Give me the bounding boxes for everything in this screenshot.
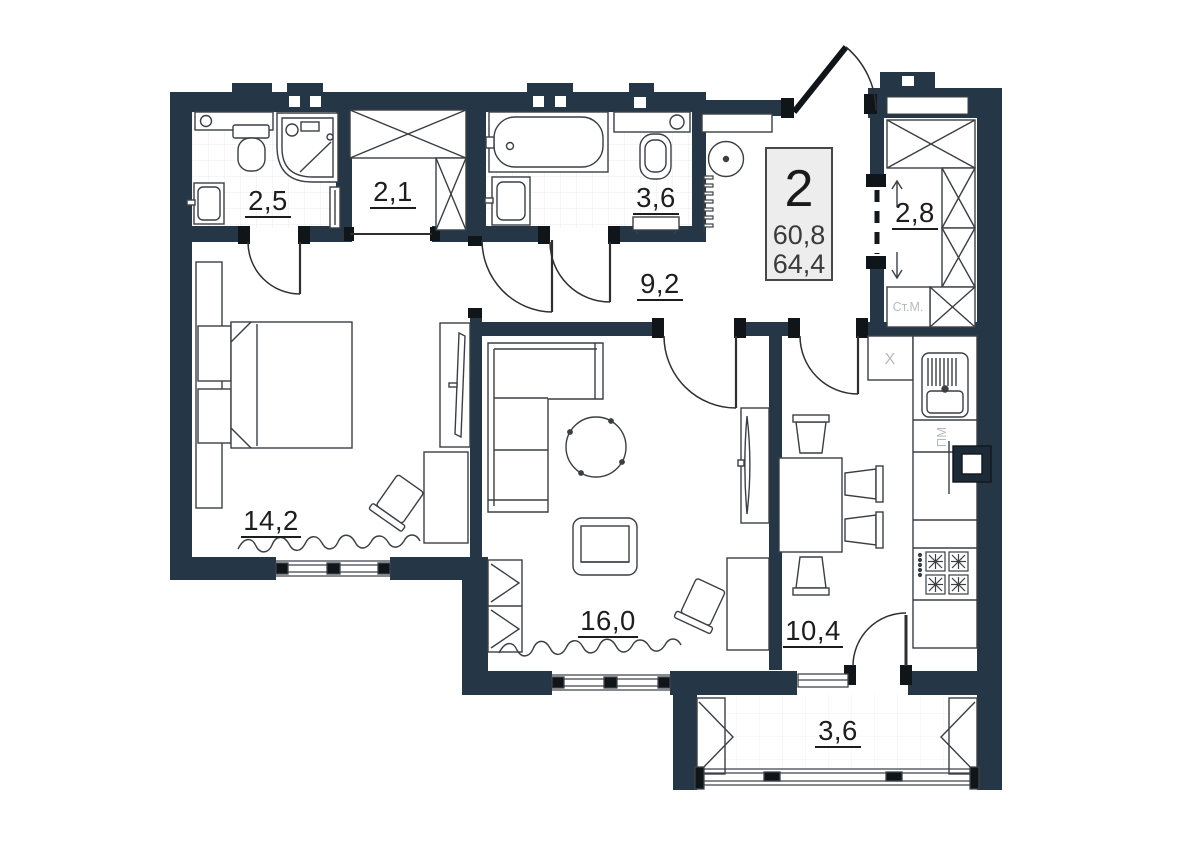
balcony-area-label: 3,6 bbox=[818, 715, 858, 746]
down-arrow-icon bbox=[892, 252, 902, 278]
desk-chair bbox=[369, 472, 428, 532]
bathroom-area-label: 3,6 bbox=[636, 182, 676, 213]
bedroom-door bbox=[482, 240, 552, 312]
coffee-table-icon bbox=[566, 417, 626, 477]
bathtub-icon bbox=[486, 112, 608, 172]
ensuite-door bbox=[248, 242, 300, 294]
hallway-area-label: 9,2 bbox=[640, 268, 680, 299]
rooms-count-label: 2 bbox=[785, 160, 814, 218]
room-bedroom bbox=[196, 262, 470, 552]
plan-info-box: 2 60,8 64,4 bbox=[766, 148, 832, 280]
wardrobe-area-label: 2,1 bbox=[373, 176, 413, 207]
living-window bbox=[552, 675, 670, 690]
console-shelf bbox=[702, 114, 772, 132]
dining-chair bbox=[793, 415, 829, 453]
floor-plan-canvas: 2 60,8 64,4 2,5 2,1 3,6 9,2 2,8 14,2 16,… bbox=[0, 0, 1200, 848]
mirror-center-dot bbox=[724, 157, 729, 162]
balcony-glazing bbox=[695, 767, 979, 789]
dining-chair bbox=[845, 466, 883, 502]
headboard-panel bbox=[196, 262, 222, 508]
living-door bbox=[664, 336, 736, 408]
kitchen-area-label: 10,4 bbox=[785, 615, 841, 646]
dining-chair bbox=[845, 512, 883, 548]
sofa-icon bbox=[488, 343, 603, 512]
entrance-door bbox=[794, 47, 876, 112]
area-total-label: 64,4 bbox=[773, 249, 826, 279]
desk-chair bbox=[674, 576, 729, 634]
kitchen-door bbox=[800, 336, 858, 394]
bedroom-area-label: 14,2 bbox=[243, 505, 299, 536]
radiator bbox=[330, 187, 340, 228]
living-area-label: 16,0 bbox=[580, 605, 636, 636]
area-main-label: 60,8 bbox=[773, 220, 826, 250]
desk bbox=[727, 558, 769, 650]
room-hallway bbox=[702, 114, 772, 177]
boiler-icon bbox=[201, 116, 212, 127]
laundry-area-label: 2,8 bbox=[895, 197, 935, 228]
dining-chair bbox=[793, 557, 829, 595]
curtain-line bbox=[499, 639, 681, 656]
floor-plan: 2 60,8 64,4 2,5 2,1 3,6 9,2 2,8 14,2 16,… bbox=[0, 0, 1200, 848]
bed-icon bbox=[231, 322, 352, 448]
toilet-icon bbox=[233, 125, 269, 171]
storage-cabinet bbox=[488, 560, 522, 652]
balcony-door bbox=[853, 613, 906, 666]
ensuite-area-label: 2,5 bbox=[248, 185, 288, 216]
wardrobe-icon bbox=[440, 323, 470, 447]
washing-machine-label: Ст.М. bbox=[893, 300, 924, 314]
desk bbox=[424, 452, 468, 543]
dining-table bbox=[779, 458, 842, 552]
dishwasher-label: ПМ bbox=[934, 427, 949, 447]
kitchen-sink-icon bbox=[922, 353, 968, 417]
toilet-icon bbox=[640, 134, 671, 179]
armchair-icon bbox=[573, 518, 637, 575]
tv-stand bbox=[738, 408, 769, 523]
corner-shower-icon bbox=[277, 113, 338, 182]
light-icon bbox=[670, 115, 684, 129]
bathroom-door bbox=[550, 242, 610, 302]
sink-icon bbox=[485, 177, 530, 225]
room-kitchen bbox=[779, 336, 991, 648]
corner-sink-label: X bbox=[885, 351, 896, 368]
room-wardrobe bbox=[350, 110, 466, 230]
nightstand bbox=[198, 326, 231, 381]
nightstand bbox=[198, 389, 231, 443]
bedroom-window bbox=[276, 561, 390, 576]
wardrobe-icon bbox=[350, 110, 466, 230]
kitchen-window bbox=[798, 674, 848, 687]
